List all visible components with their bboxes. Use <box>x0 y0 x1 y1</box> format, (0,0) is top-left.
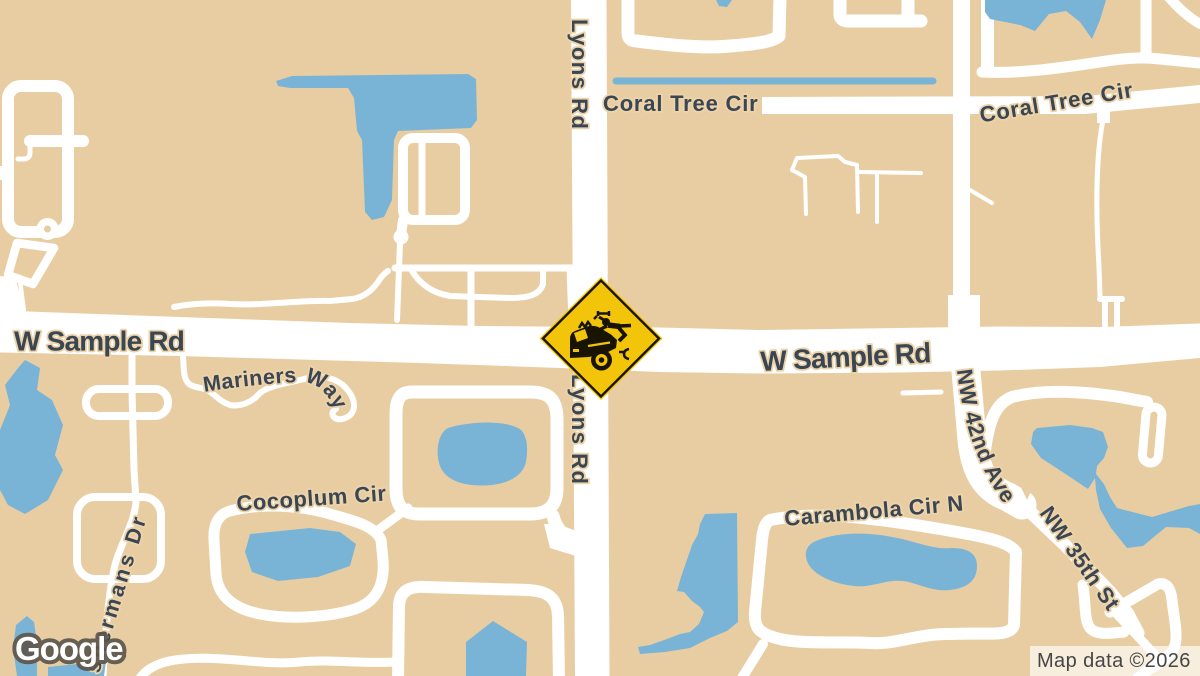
svg-text:Lyons Rd: Lyons Rd <box>567 374 592 485</box>
svg-text:Map data ©2026: Map data ©2026 <box>1037 650 1191 672</box>
svg-text:W Sample Rd: W Sample Rd <box>14 326 184 357</box>
svg-text:Coral Tree Cir: Coral Tree Cir <box>603 91 758 116</box>
svg-text:Google: Google <box>15 630 123 667</box>
svg-text:Lyons Rd: Lyons Rd <box>567 19 592 130</box>
